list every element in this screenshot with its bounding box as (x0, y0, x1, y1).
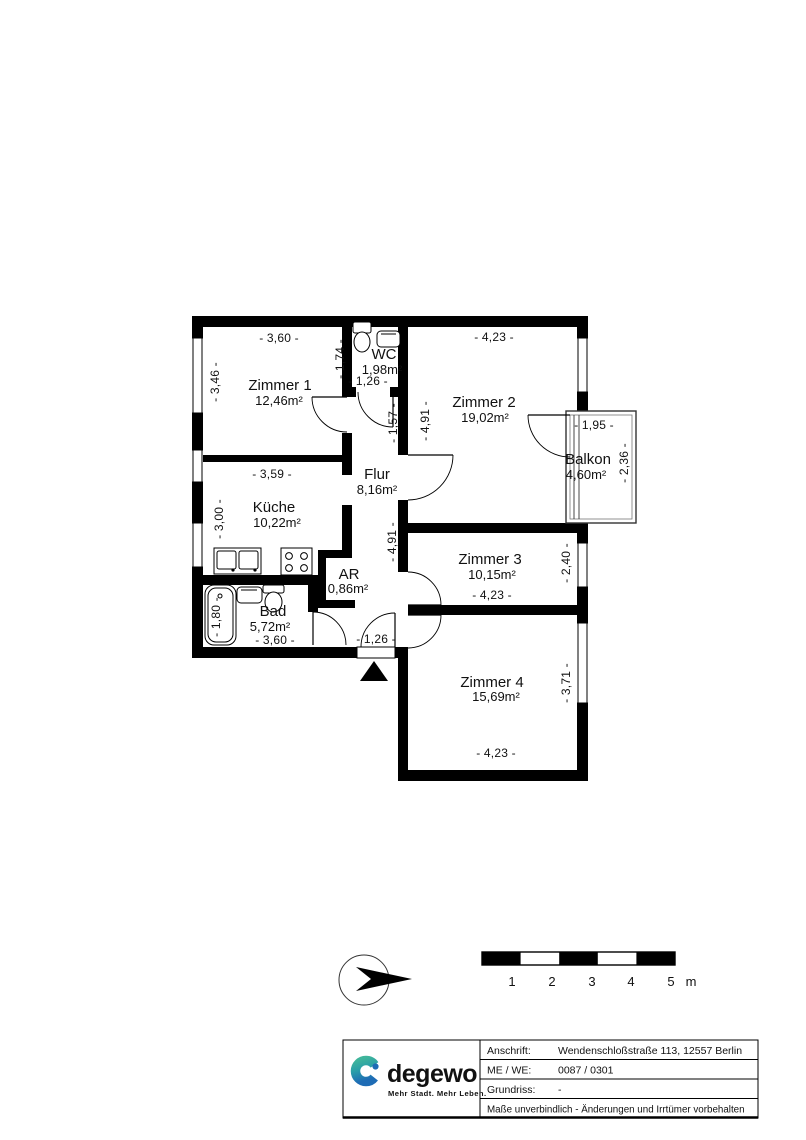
dim-zimmer2-depth: - 4,91 - (418, 401, 432, 441)
room-zimmer4-area: 15,69m² (472, 689, 520, 704)
wall-segment (577, 523, 588, 543)
anschrift-label: Anschrift: (487, 1045, 531, 1057)
wall-segment (192, 316, 588, 327)
me-we-label: ME / WE: (487, 1065, 531, 1077)
wall-segment (577, 703, 588, 781)
wall-segment (398, 770, 588, 781)
room-kueche-area: 10,22m² (253, 515, 301, 530)
window-left-mid (192, 450, 203, 482)
dim-zimmer4-depth: - 3,71 - (559, 663, 573, 703)
entrance-arrow-icon (360, 661, 388, 681)
brand-name: degewo (387, 1060, 477, 1088)
wall-segment (192, 575, 318, 585)
wall-segment (192, 455, 343, 462)
wall-segment (342, 387, 356, 397)
dim-zimmer2-width: - 4,23 - (474, 330, 514, 344)
disclaimer-text: Maße unverbindlich - Änderungen und Irrt… (487, 1105, 745, 1116)
kitchen-sink-icon (214, 548, 261, 574)
room-ar-area: 0,86m² (328, 581, 369, 596)
dim-entry-width: - 1,26 - (356, 632, 396, 646)
room-flur-label: Flur (364, 466, 390, 483)
wall-segment (577, 392, 588, 411)
room-zimmer1-area: 12,46m² (255, 393, 303, 408)
wall-segment (408, 605, 577, 615)
scale-label-4: 4 (627, 974, 634, 989)
door-zimmer4 (408, 615, 441, 648)
wc-sink-icon (377, 331, 400, 347)
room-zimmer2-area: 19,02m² (461, 410, 509, 425)
window-zimmer3 (577, 543, 588, 587)
room-zimmer3-area: 10,15m² (468, 567, 516, 582)
room-balkon-area: 4,60m² (566, 467, 607, 482)
dim-balkon-width: - 1,95 - (574, 418, 614, 432)
room-balkon-label: Balkon (565, 451, 611, 468)
wall-segment (308, 585, 318, 612)
title-block: degewo Mehr Stadt. Mehr Leben. Anschrift… (343, 1040, 758, 1118)
north-arrow-icon (339, 955, 412, 1005)
brand-tagline: Mehr Stadt. Mehr Leben. (388, 1089, 487, 1098)
bad-sink-icon (237, 587, 262, 603)
dim-wc-width: - 1,26 - (348, 374, 388, 388)
dim-zimmer1-depth: - 3,46 - (208, 362, 222, 402)
window-zimmer4 (577, 623, 588, 703)
entrance-threshold (357, 647, 395, 658)
room-wc-label: WC (372, 346, 397, 363)
window-zimmer1 (192, 338, 203, 413)
scale-label-3: 3 (588, 974, 595, 989)
room-zimmer1-label: Zimmer 1 (248, 377, 311, 394)
room-flur-area: 8,16m² (357, 482, 398, 497)
door-bad (313, 612, 346, 645)
door-balkon (528, 415, 570, 457)
anschrift-value: Wendenschloßstraße 113, 12557 Berlin (558, 1045, 742, 1057)
door-zimmer3 (408, 572, 441, 605)
wall-segment (318, 600, 355, 608)
door-zimmer2 (408, 455, 453, 500)
dim-kueche-depth: - 3,00 - (212, 499, 226, 539)
dim-zimmer3-width: - 4,23 - (472, 588, 512, 602)
window-zimmer2 (577, 338, 588, 392)
dim-balkon-depth: - 2,36 - (617, 443, 631, 483)
room-kueche-label: Küche (253, 499, 296, 516)
floorplan-page: Zimmer 1 12,46m² WC 1,98m² Zimmer 2 19,0… (0, 0, 806, 1140)
scale-label-1: 1 (508, 974, 515, 989)
wall-segment (192, 647, 357, 658)
dim-wc-depth: - 1,74 - (333, 339, 347, 379)
wall-segment (192, 482, 203, 523)
grundriss-value: - (558, 1084, 562, 1096)
wall-segment (398, 500, 408, 572)
scale-label-5: 5 (667, 974, 674, 989)
wall-segment (577, 587, 588, 623)
room-bad-area: 5,72m² (250, 619, 291, 634)
dim-zimmer1-width: - 3,60 - (259, 331, 299, 345)
scale-bar: 1 2 3 4 5 m (482, 952, 696, 989)
dim-flur-upper: - 1,57 - (386, 403, 400, 443)
window-kueche (192, 523, 203, 567)
dim-kueche-width: - 3,59 - (252, 467, 292, 481)
door-zimmer1 (312, 397, 347, 432)
wall-segment (398, 647, 408, 781)
wc-toilet-icon (353, 322, 371, 352)
wall-segment (408, 523, 577, 533)
floorplan-drawing: Zimmer 1 12,46m² WC 1,98m² Zimmer 2 19,0… (0, 0, 806, 1140)
logo-dot-icon (372, 1063, 378, 1069)
scale-label-2: 2 (548, 974, 555, 989)
room-bad-label: Bad (260, 603, 287, 620)
dim-bad-tub: - 1,80 - (209, 597, 223, 637)
wall-segment (192, 413, 203, 450)
scale-unit: m (686, 974, 697, 989)
wall-segment (577, 316, 588, 338)
room-zimmer2-label: Zimmer 2 (452, 394, 515, 411)
wall-segment (192, 316, 203, 338)
dim-bad-width: - 3,60 - (255, 633, 295, 647)
stove-icon (281, 548, 312, 575)
dim-flur-length: - 4,91 - (385, 522, 399, 562)
me-we-value: 0087 / 0301 (558, 1065, 614, 1077)
grundriss-label: Grundriss: (487, 1084, 535, 1096)
dim-zimmer3-depth: - 2,40 - (559, 543, 573, 583)
room-zimmer3-label: Zimmer 3 (458, 551, 521, 568)
wall-segment (342, 433, 352, 475)
dim-zimmer4-width: - 4,23 - (476, 746, 516, 760)
wall-segment (318, 550, 352, 558)
